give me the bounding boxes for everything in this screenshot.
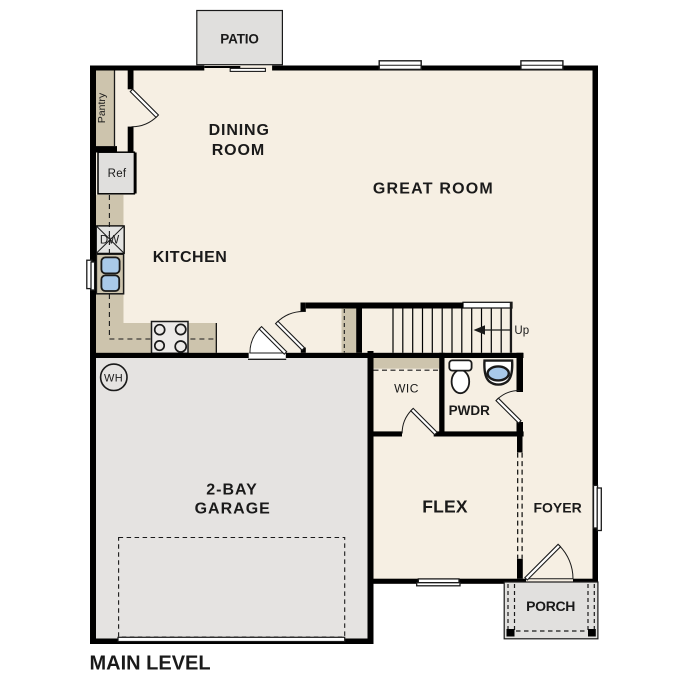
svg-text:Up: Up bbox=[514, 325, 529, 337]
svg-text:PATIO: PATIO bbox=[220, 32, 259, 47]
svg-text:FLEX: FLEX bbox=[422, 496, 468, 516]
svg-text:Ref: Ref bbox=[108, 168, 127, 180]
svg-text:2-BAY: 2-BAY bbox=[206, 481, 258, 498]
svg-text:Pantry: Pantry bbox=[96, 92, 108, 123]
svg-text:GARAGE: GARAGE bbox=[195, 501, 271, 518]
svg-text:PORCH: PORCH bbox=[526, 598, 575, 614]
svg-text:WH: WH bbox=[104, 373, 123, 385]
svg-text:DINING: DINING bbox=[209, 122, 270, 139]
svg-text:WIC: WIC bbox=[394, 382, 419, 396]
svg-text:DW: DW bbox=[100, 235, 120, 247]
svg-text:KITCHEN: KITCHEN bbox=[153, 249, 228, 266]
svg-text:MAIN LEVEL: MAIN LEVEL bbox=[90, 653, 211, 675]
svg-text:PWDR: PWDR bbox=[449, 403, 490, 418]
svg-text:FOYER: FOYER bbox=[533, 500, 581, 516]
svg-text:GREAT ROOM: GREAT ROOM bbox=[373, 180, 494, 197]
svg-text:ROOM: ROOM bbox=[212, 142, 265, 159]
